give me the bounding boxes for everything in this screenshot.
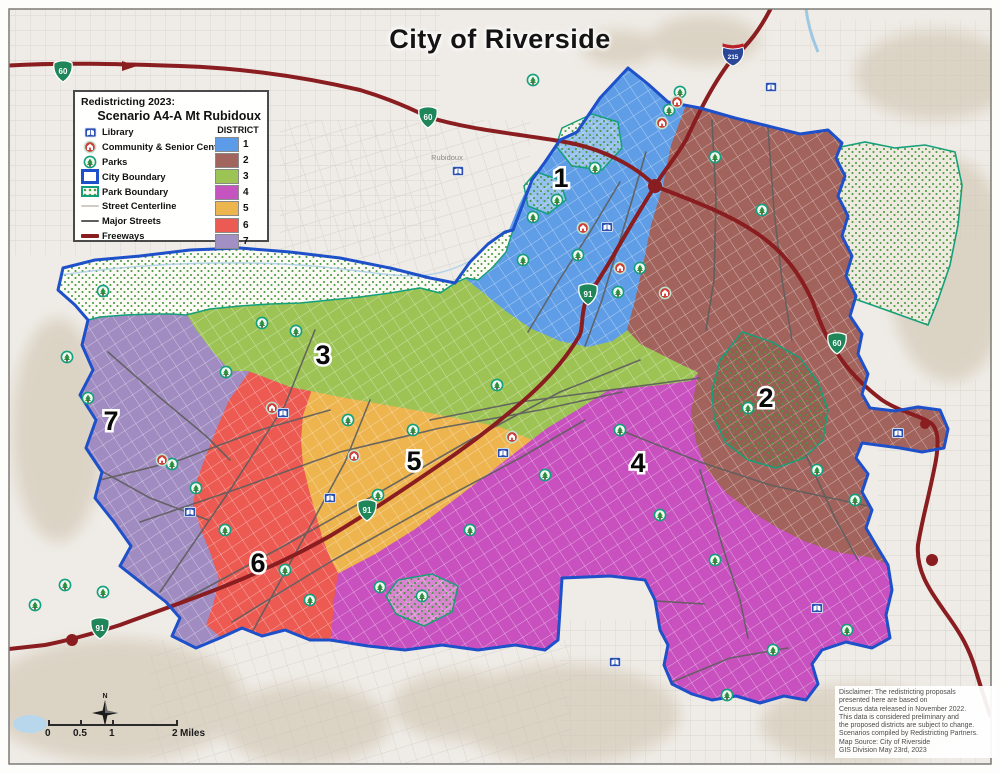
legend-district-5: 5 <box>215 201 261 217</box>
park-icon <box>97 586 108 597</box>
legend-district-1: 1 <box>215 136 261 152</box>
park-icon <box>614 424 625 435</box>
svg-text:91: 91 <box>96 624 105 633</box>
park-boundary-swatch <box>81 186 99 197</box>
svg-text:91: 91 <box>363 506 372 515</box>
park-icon <box>709 554 720 565</box>
major-streets-swatch <box>81 220 99 223</box>
community-center-icon <box>81 140 99 154</box>
disclaimer-line: Scenarios compiled by Redistricting Part… <box>839 730 992 738</box>
community-center-icon <box>671 96 682 107</box>
library-icon <box>184 507 195 516</box>
park-icon <box>709 151 720 162</box>
park-icon <box>256 317 267 328</box>
park-icon <box>811 464 822 475</box>
park-icon <box>279 564 290 575</box>
district-label-1: 1 <box>553 163 568 193</box>
park-icon <box>539 469 550 480</box>
library-icon <box>324 493 335 502</box>
park-icon <box>527 74 538 85</box>
community-center-icon <box>614 262 625 273</box>
street-centerline-swatch <box>81 205 99 207</box>
park-icon <box>572 249 583 260</box>
legend-district-7: 7 <box>215 233 261 249</box>
park-icon <box>59 579 70 590</box>
legend-panel: Redistricting 2023: Scenario A4-A Mt Rub… <box>73 90 269 242</box>
disclaimer-line: the proposed districts are subject to ch… <box>839 722 992 730</box>
park-icon <box>841 624 852 635</box>
community-center-icon <box>656 117 667 128</box>
community-center-icon <box>156 454 167 465</box>
place-label: Rubidoux <box>431 153 463 162</box>
park-icon <box>407 424 418 435</box>
svg-text:91: 91 <box>584 290 593 299</box>
scale-label-0: 0 <box>45 728 51 739</box>
svg-text:215: 215 <box>728 54 739 61</box>
park-icon <box>517 254 528 265</box>
library-icon <box>609 657 620 666</box>
community-center-icon <box>348 450 359 461</box>
park-icon <box>551 194 562 205</box>
district-swatch-3 <box>215 169 239 184</box>
district-label-4: 4 <box>630 448 645 478</box>
district-swatch-5 <box>215 201 239 216</box>
park-icon <box>220 366 231 377</box>
district-label-2: 2 <box>758 383 773 413</box>
scale-label-1: 1 <box>109 728 115 739</box>
park-icon <box>491 379 502 390</box>
library-icon <box>811 603 822 612</box>
park-icon <box>721 689 732 700</box>
community-center-icon <box>266 402 277 413</box>
disclaimer-line: Census data released in November 2022. <box>839 706 992 714</box>
library-icon <box>81 126 99 139</box>
city-boundary-swatch <box>81 169 99 184</box>
park-icon <box>304 594 315 605</box>
park-icon <box>589 162 600 173</box>
legend-district-column: DISTRICT 1 2 3 4 5 6 7 <box>215 125 261 249</box>
park-icon <box>374 581 385 592</box>
park-icon <box>849 494 860 505</box>
park-icon <box>742 402 753 413</box>
district-label-5: 5 <box>406 446 421 476</box>
scale-unit-label: Miles <box>180 728 205 739</box>
map-title: City of Riverside <box>389 24 611 55</box>
park-icon <box>61 351 72 362</box>
legend-district-3: 3 <box>215 168 261 184</box>
park-icon <box>82 392 93 403</box>
legend-district-4: 4 <box>215 185 261 201</box>
library-icon <box>452 166 463 175</box>
district-swatch-6 <box>215 218 239 233</box>
district-label-7: 7 <box>103 406 118 436</box>
district-swatch-1 <box>215 137 239 152</box>
disclaimer-line: presented here are based on <box>839 697 992 705</box>
park-icon <box>756 204 767 215</box>
library-icon <box>497 448 508 457</box>
lake <box>13 715 47 733</box>
park-icon <box>81 155 99 169</box>
scale-bar: 0 0.5 1 2 Miles <box>44 716 214 742</box>
legend-heading: Redistricting 2023: <box>81 96 261 108</box>
district-column-header: DISTRICT <box>215 125 261 135</box>
disclaimer-line: This data is considered preliminary and <box>839 714 992 722</box>
svg-text:60: 60 <box>424 113 433 122</box>
park-icon <box>29 599 40 610</box>
legend-scenario-heading: Scenario A4-A Mt Rubidoux <box>81 109 261 123</box>
district-swatch-7 <box>215 234 239 249</box>
library-icon <box>892 428 903 437</box>
park-icon <box>767 644 778 655</box>
district-label-6: 6 <box>250 548 265 578</box>
district-swatch-2 <box>215 153 239 168</box>
park-icon <box>527 211 538 222</box>
district-swatch-4 <box>215 185 239 200</box>
legend-district-2: 2 <box>215 152 261 168</box>
scale-label-0-5: 0.5 <box>73 728 87 739</box>
district-label-3: 3 <box>315 340 330 370</box>
park-icon <box>634 262 645 273</box>
svg-text:60: 60 <box>59 67 68 76</box>
park-icon <box>190 482 201 493</box>
disclaimer-box: Disclaimer: The redistricting proposals … <box>835 686 996 758</box>
scale-label-2: 2 <box>172 728 178 739</box>
library-icon <box>765 82 776 91</box>
map-document: 606060215919191 1234567Rubidoux City of … <box>0 0 1000 773</box>
north-label: N <box>102 693 107 700</box>
park-icon <box>290 325 301 336</box>
disclaimer-line: Map Source: City of Riverside <box>839 739 992 747</box>
library-icon <box>601 222 612 231</box>
library-icon <box>277 408 288 417</box>
park-icon <box>97 285 108 296</box>
park-icon <box>416 590 427 601</box>
park-icon <box>219 524 230 535</box>
freeways-swatch <box>81 234 99 238</box>
park-icon <box>372 489 383 500</box>
park-icon <box>654 509 665 520</box>
park-icon <box>464 524 475 535</box>
svg-text:60: 60 <box>833 339 842 348</box>
community-center-icon <box>577 222 588 233</box>
park-icon <box>612 286 623 297</box>
community-center-icon <box>659 287 670 298</box>
disclaimer-line: GIS Division May 23rd, 2023 <box>839 747 992 755</box>
disclaimer-line: Disclaimer: The redistricting proposals <box>839 689 992 697</box>
park-icon <box>342 414 353 425</box>
legend-district-6: 6 <box>215 217 261 233</box>
community-center-icon <box>506 431 517 442</box>
